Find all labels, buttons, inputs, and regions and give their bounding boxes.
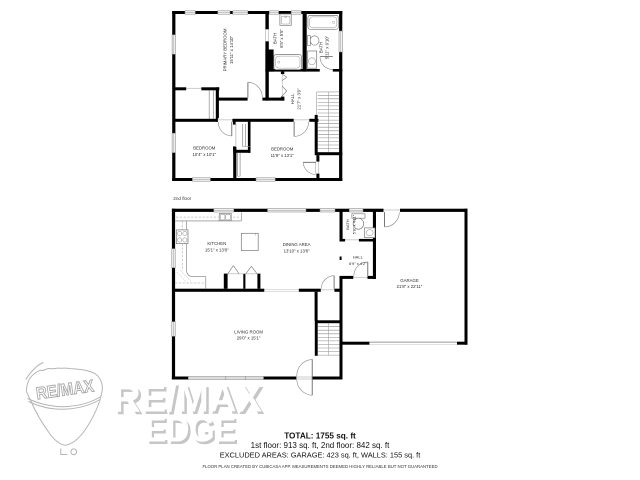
- svg-text:2nd floor: 2nd floor: [173, 196, 191, 201]
- svg-text:EXCLUDED AREAS: GARAGE: 423 sq: EXCLUDED AREAS: GARAGE: 423 sq. ft, WALL…: [220, 451, 421, 460]
- svg-text:BATH: BATH: [272, 33, 277, 44]
- svg-text:BEDROOM: BEDROOM: [193, 146, 216, 151]
- svg-text:HALL: HALL: [353, 255, 364, 260]
- svg-text:10'4" x 10'1": 10'4" x 10'1": [193, 152, 217, 157]
- svg-text:EDGE: EDGE: [145, 408, 236, 449]
- svg-text:RE/MAX: RE/MAX: [35, 376, 96, 403]
- svg-text:15'11" x 14'10": 15'11" x 14'10": [229, 36, 234, 65]
- svg-text:21'8" x 22'11": 21'8" x 22'11": [397, 284, 423, 289]
- svg-text:1st floor: 913 sq. ft, 2nd flo: 1st floor: 913 sq. ft, 2nd floor: 842 sq…: [251, 441, 391, 450]
- svg-text:5'8" x 4'11": 5'8" x 4'11": [352, 214, 357, 234]
- svg-text:6'5" x 5'5": 6'5" x 5'5": [279, 29, 284, 48]
- svg-text:29'0" x 15'1": 29'0" x 15'1": [237, 336, 261, 341]
- svg-text:TOTAL: 1755 sq. ft: TOTAL: 1755 sq. ft: [284, 432, 356, 441]
- svg-text:13'10" x 13'8": 13'10" x 13'8": [284, 249, 310, 254]
- svg-text:5'11" x 9'10": 5'11" x 9'10": [325, 35, 330, 59]
- svg-text:BATH: BATH: [345, 219, 350, 229]
- svg-text:FLOOR PLAN CREATED BY CUBICASA: FLOOR PLAN CREATED BY CUBICASA APP. MEAS…: [202, 464, 437, 469]
- svg-text:HALL: HALL: [290, 93, 295, 104]
- svg-text:BEDROOM: BEDROOM: [271, 147, 294, 152]
- svg-text:6'9" x 4'2": 6'9" x 4'2": [349, 261, 367, 266]
- svg-text:GARAGE: GARAGE: [400, 278, 419, 283]
- svg-text:KITCHEN: KITCHEN: [207, 241, 226, 246]
- svg-text:PRIMARY BEDROOM: PRIMARY BEDROOM: [223, 28, 228, 71]
- svg-text:15'1" x 13'8": 15'1" x 13'8": [205, 248, 229, 253]
- svg-text:BATH: BATH: [318, 42, 323, 53]
- svg-text:DINING AREA: DINING AREA: [283, 242, 311, 247]
- svg-text:11'9" x 13'1": 11'9" x 13'1": [271, 153, 295, 158]
- svg-text:21'7" x 3'9": 21'7" x 3'9": [297, 88, 302, 110]
- svg-text:LIVING ROOM: LIVING ROOM: [234, 329, 263, 334]
